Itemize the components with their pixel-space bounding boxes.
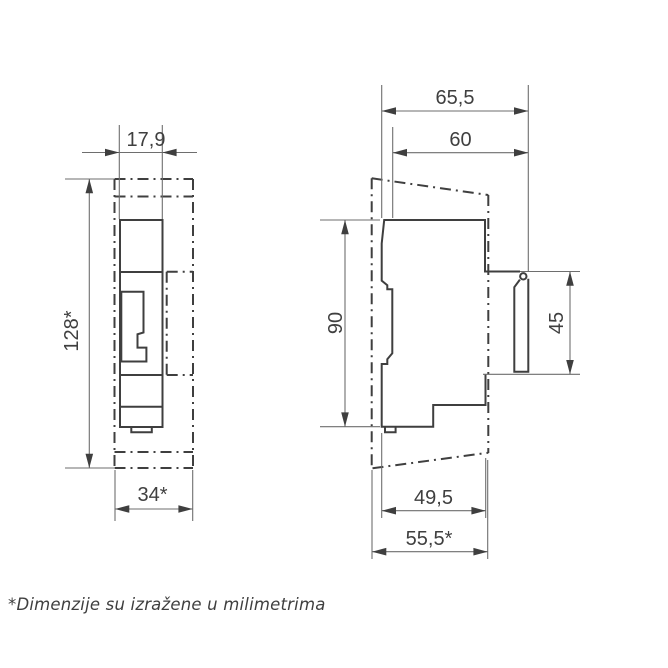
side-cover-height-label: 45 <box>546 312 568 334</box>
side-height-body-label: 90 <box>325 312 347 334</box>
front-view-outline <box>120 220 163 432</box>
front-dim-width-top: 17,9 <box>82 125 197 219</box>
front-view: 17,9 128* 34* <box>61 125 197 521</box>
side-view-outline <box>382 220 529 432</box>
side-dim-cover-height: 45 <box>483 272 580 375</box>
front-view-envelope <box>115 179 194 468</box>
front-dim-height: 128* <box>61 179 114 468</box>
drawing-svg: 17,9 128* 34* <box>0 0 668 668</box>
front-dim-width-bottom: 34* <box>115 470 193 521</box>
side-dim-depth-front: 60 <box>393 127 529 218</box>
dimension-drawing: 17,9 128* 34* <box>0 0 668 668</box>
side-view-envelope <box>372 178 489 468</box>
hinge-pin-icon <box>520 273 526 279</box>
terminal-cover-flap <box>514 279 528 372</box>
side-depth-lower-label: 49,5 <box>414 487 453 509</box>
front-height-label: 128* <box>61 310 83 351</box>
front-width-top-label: 17,9 <box>127 129 166 151</box>
footnote: *Dimenzije su izražene u milimetrima <box>8 595 326 614</box>
side-view: 65,5 60 90 45 <box>320 85 580 559</box>
side-dim-depth-total: 65,5 <box>382 85 529 272</box>
side-dim-depth-lower: 49,5 <box>382 433 486 518</box>
side-depth-lower-total-label: 55,5* <box>406 528 453 550</box>
side-profile <box>382 220 520 427</box>
side-depth-total-label: 65,5 <box>436 87 475 109</box>
front-window-cutout <box>121 292 146 362</box>
side-depth-front-label: 60 <box>449 129 471 151</box>
front-width-bottom-label: 34* <box>137 484 167 506</box>
